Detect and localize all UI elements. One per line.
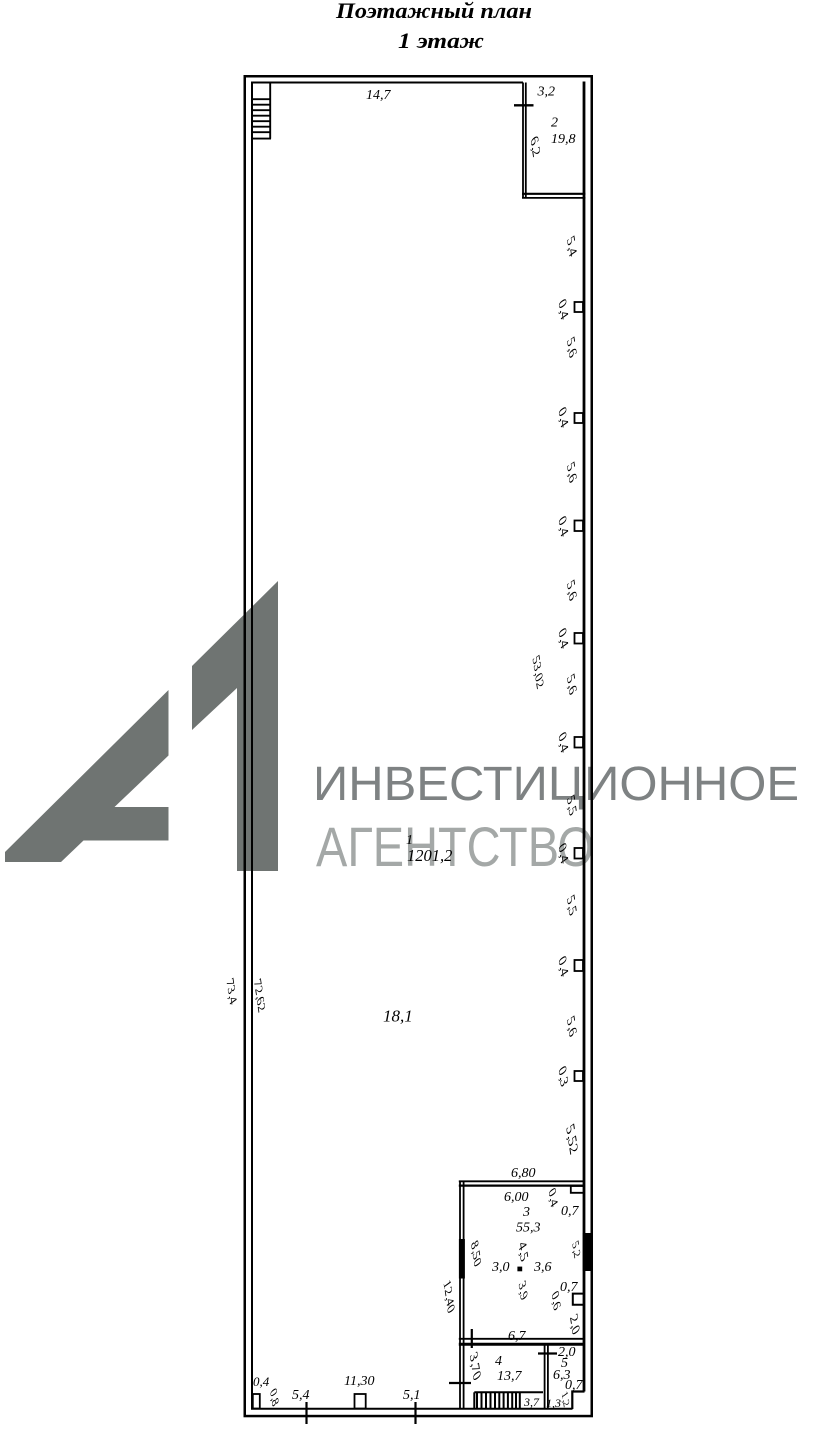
svg-text:Поэтажный план: Поэтажный план bbox=[335, 0, 532, 23]
svg-text:АГЕНТСТВО: АГЕНТСТВО bbox=[316, 815, 594, 878]
svg-text:ИНВЕСТИЦИОННОЕ: ИНВЕСТИЦИОННОЕ bbox=[313, 758, 799, 811]
svg-text:0,7: 0,7 bbox=[560, 1280, 579, 1295]
svg-text:14,7: 14,7 bbox=[366, 88, 392, 103]
svg-text:1 этаж: 1 этаж bbox=[398, 28, 484, 53]
svg-text:0,4: 0,4 bbox=[253, 1374, 270, 1389]
svg-text:3,7: 3,7 bbox=[523, 1395, 540, 1409]
svg-text:0,7: 0,7 bbox=[561, 1204, 580, 1219]
svg-text:11,30: 11,30 bbox=[344, 1374, 374, 1389]
svg-text:2: 2 bbox=[551, 116, 558, 131]
svg-text:6,7: 6,7 bbox=[508, 1329, 527, 1344]
svg-text:55,3: 55,3 bbox=[516, 1221, 541, 1236]
svg-text:1201,2: 1201,2 bbox=[407, 846, 452, 865]
svg-text:5,4: 5,4 bbox=[292, 1388, 310, 1403]
svg-text:19,8: 19,8 bbox=[551, 132, 576, 147]
svg-text:18,1: 18,1 bbox=[383, 1007, 413, 1026]
svg-text:3,2: 3,2 bbox=[537, 85, 556, 100]
svg-text:4: 4 bbox=[495, 1354, 502, 1369]
svg-text:6,00: 6,00 bbox=[504, 1190, 529, 1205]
svg-text:3,6: 3,6 bbox=[533, 1260, 552, 1275]
svg-text:3,0: 3,0 bbox=[491, 1260, 510, 1275]
svg-text:13,7: 13,7 bbox=[497, 1369, 523, 1384]
svg-text:1,3: 1,3 bbox=[546, 1396, 561, 1410]
svg-text:6,80: 6,80 bbox=[511, 1166, 536, 1181]
svg-text:3: 3 bbox=[522, 1205, 530, 1220]
svg-text:5,1: 5,1 bbox=[403, 1388, 421, 1403]
